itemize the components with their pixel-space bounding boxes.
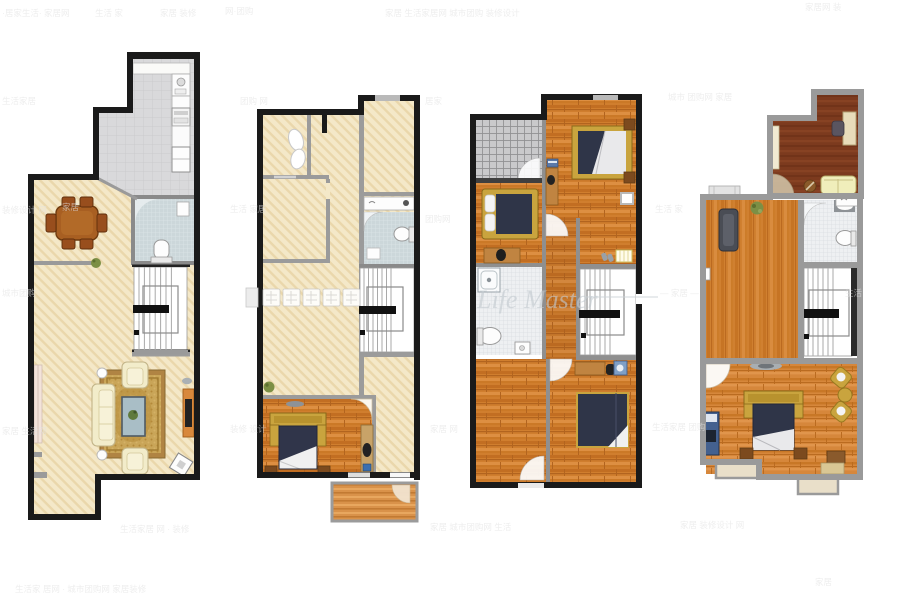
svg-text:生活家居 团购: 生活家居 团购	[652, 422, 705, 432]
svg-text:家居: 家居	[62, 202, 79, 212]
svg-text:生活家 居网 · 城市团购网 家居装修: 生活家 居网 · 城市团购网 家居装修	[15, 584, 147, 594]
svg-text:家居 生活网: 家居 生活网	[2, 426, 47, 436]
svg-text:家居 装修设计 网: 家居 装修设计 网	[680, 520, 744, 530]
svg-text:生活: 生活	[845, 288, 863, 298]
svg-text:团购 网: 团购 网	[240, 96, 268, 106]
svg-text:生活家居: 生活家居	[2, 96, 36, 106]
svg-text:家居 城市团购网 生活: 家居 城市团购网 生活	[430, 522, 512, 532]
svg-text:城市 团购网 家居: 城市 团购网 家居	[668, 92, 732, 102]
svg-text:团购网: 团购网	[425, 214, 451, 224]
svg-text:家居 生活家居网 城市团购 装修设计: 家居 生活家居网 城市团购 装修设计	[385, 8, 520, 18]
svg-text:家居网 装: 家居网 装	[805, 2, 842, 12]
svg-text:·居家生活· 家居网: ·居家生活· 家居网	[2, 8, 70, 18]
svg-text:家居 装修: 家居 装修	[160, 8, 197, 18]
svg-text:装修 设计: 装修 设计	[230, 424, 267, 434]
svg-text:家居 网: 家居 网	[430, 424, 458, 434]
svg-text:生活家居 网 · 装修: 生活家居 网 · 装修	[120, 524, 190, 534]
svg-text:生活 家: 生活 家	[95, 8, 123, 18]
svg-text:网·团购: 网·团购	[225, 6, 253, 16]
svg-text:— 家居 —: — 家居 —	[660, 288, 699, 298]
svg-text:家居: 家居	[815, 577, 832, 587]
svg-text:生活 家: 生活 家	[655, 204, 683, 214]
svg-text:生活 家居: 生活 家居	[230, 204, 266, 214]
svg-text:城市团购: 城市团购	[2, 288, 36, 298]
svg-text:居家: 居家	[425, 96, 443, 106]
svg-text:Life Master: Life Master	[476, 285, 598, 314]
svg-text:装修设计 网: 装修设计 网	[2, 205, 47, 215]
